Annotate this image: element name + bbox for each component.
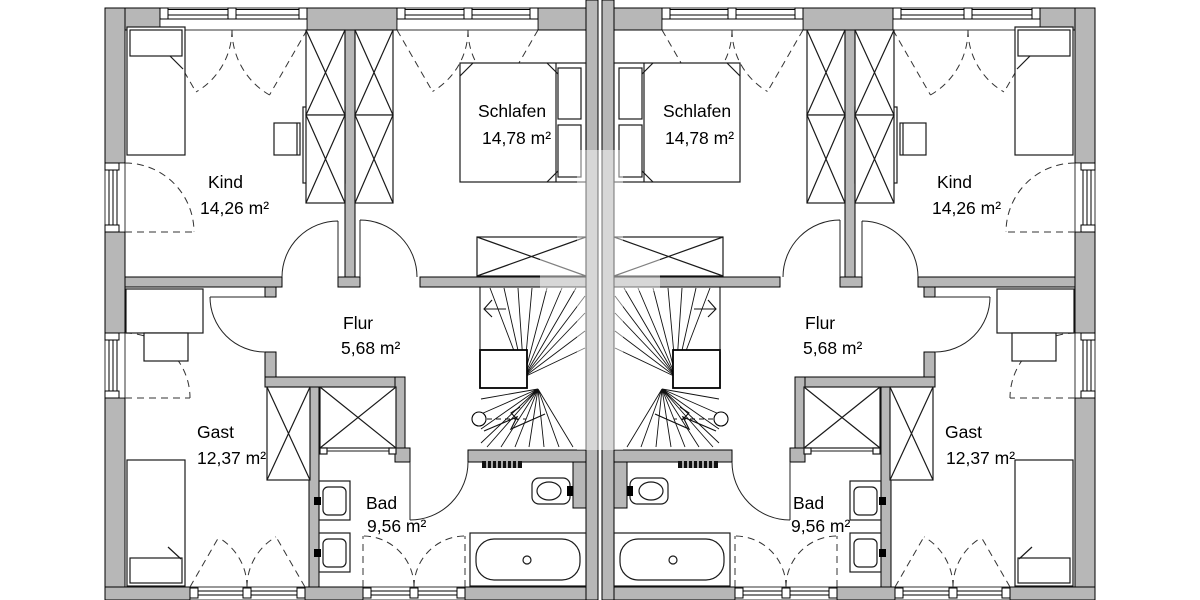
duct — [573, 462, 586, 508]
wardrobe-gast — [267, 387, 310, 480]
room-area-flur-right: 5,68 m² — [803, 338, 862, 358]
room-label-gast-right: Gast — [945, 422, 982, 442]
washbasin — [314, 481, 350, 520]
room-label-schlafen-right: Schlafen — [663, 101, 731, 121]
closet-bad — [320, 387, 396, 454]
wardrobe-schlafen — [355, 30, 393, 203]
door-kind — [282, 221, 338, 277]
room-area-kind-left: 14,26 m² — [200, 198, 269, 218]
room-label-flur-right: Flur — [805, 313, 835, 333]
bath-fixtures — [314, 461, 586, 586]
housing-unit — [105, 0, 598, 600]
room-area-gast-left: 12,37 m² — [197, 448, 266, 468]
room-label-flur-left: Flur — [343, 313, 373, 333]
bed-gast — [127, 460, 185, 586]
room-area-kind-right: 14,26 m² — [932, 198, 1001, 218]
watermark — [540, 150, 660, 450]
wardrobe-kind — [306, 30, 345, 203]
room-label-kind-left: Kind — [208, 172, 243, 192]
stair-newel — [472, 412, 486, 426]
housing-unit-mirrored — [602, 0, 1095, 600]
room-area-flur-left: 5,68 m² — [341, 338, 400, 358]
room-area-schlafen-left: 14,78 m² — [482, 128, 551, 148]
room-area-schlafen-right: 14,78 m² — [665, 128, 734, 148]
room-label-bad-right: Bad — [793, 493, 824, 513]
door-gast — [210, 297, 265, 352]
window-bottom-bad — [363, 536, 465, 600]
radiator-icon — [482, 461, 522, 468]
room-area-bad-right: 9,56 m² — [791, 516, 850, 536]
room-area-bad-left: 9,56 m² — [367, 516, 426, 536]
staircase — [472, 287, 585, 447]
drain-icon — [523, 556, 531, 564]
double-bed-schlafen — [460, 63, 586, 182]
door-bad — [410, 462, 468, 520]
door-schlafen — [360, 220, 417, 277]
floor-plan-drawing: Kind 14,26 m² Schlafen 14,78 m² Flur 5,6… — [0, 0, 1200, 600]
flush-icon — [567, 486, 573, 496]
toilet — [532, 478, 573, 504]
room-area-gast-right: 12,37 m² — [946, 448, 1015, 468]
bed-kind — [127, 27, 185, 155]
room-label-kind-right: Kind — [937, 172, 972, 192]
washbasin — [314, 533, 350, 572]
floor-plan-page: Kind 14,26 m² Schlafen 14,78 m² Flur 5,6… — [0, 0, 1200, 600]
doors — [210, 220, 468, 520]
window-left-kind — [105, 163, 194, 232]
window-bottom-gast — [190, 537, 305, 600]
desk-gast — [126, 289, 203, 361]
room-label-bad-left: Bad — [366, 493, 397, 513]
bathtub — [470, 533, 586, 586]
room-label-gast-left: Gast — [197, 422, 234, 442]
room-label-schlafen-left: Schlafen — [478, 101, 546, 121]
tap-icon — [314, 497, 321, 505]
tap-icon — [314, 549, 321, 557]
